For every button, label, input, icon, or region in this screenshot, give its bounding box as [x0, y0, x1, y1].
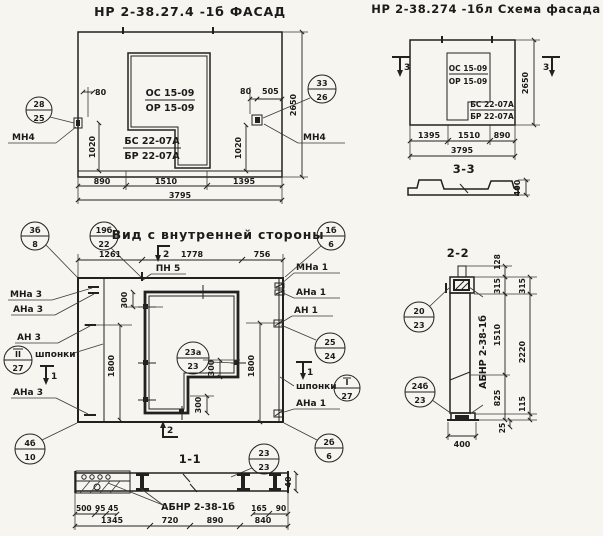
svg-text:22: 22 — [98, 240, 109, 249]
dim-400-profile: 400 — [513, 179, 522, 196]
dim-1020-right: 1020 — [234, 136, 243, 159]
dim-1510-schema: 1510 — [458, 131, 481, 140]
label-abnr-1-1: АБНР 2-38-1б — [161, 502, 235, 513]
svg-text:20: 20 — [413, 307, 425, 316]
dim-1395: 1395 — [233, 177, 256, 186]
dim-40: 40 — [284, 476, 293, 488]
svg-text:3: 3 — [543, 63, 549, 73]
dim-45: 45 — [108, 504, 118, 513]
section-3-3-title: 3-3 — [453, 162, 476, 176]
schema-title: НР 2-38.274 -1бл Схема фасада — [371, 2, 600, 16]
svg-text:II: II — [15, 350, 21, 359]
dim-128: 128 — [493, 254, 502, 270]
svg-text:28: 28 — [33, 100, 45, 109]
dim-300-bottom: 300 — [194, 396, 203, 413]
svg-text:27: 27 — [341, 392, 352, 401]
panel-body-2-2 — [450, 293, 470, 413]
label-ana3-bottom: АНа 3 — [13, 388, 43, 398]
section-mark-2-top: 2 — [155, 246, 170, 262]
svg-text:23а: 23а — [185, 348, 202, 357]
dim-1395-schema: 1395 — [418, 131, 441, 140]
schema-view: НР 2-38.274 -1бл Схема фасада ОС 15-09 О… — [371, 2, 600, 196]
schema-window-mark-bottom: ОР 15-09 — [449, 77, 487, 86]
svg-text:24: 24 — [324, 352, 336, 361]
svg-text:3б: 3б — [29, 225, 41, 235]
dim-500: 500 — [76, 504, 92, 513]
dim-115: 115 — [518, 396, 527, 412]
dim-1510-22: 1510 — [493, 323, 502, 346]
callout-28-25: 28 25 — [26, 97, 74, 123]
blueprint-sheet: НР 2-38.27.4 -1б ФАСАД ОС 15-09 ОР 15-09… — [0, 0, 603, 536]
svg-text:23: 23 — [413, 321, 424, 330]
section-1-1-title: 1-1 — [179, 452, 202, 466]
svg-text:23: 23 — [258, 463, 269, 472]
dim-825: 825 — [493, 389, 502, 406]
dim-2650-schema: 2650 — [521, 71, 530, 94]
callout-23-23: 23 23 — [231, 444, 279, 477]
label-mn4-left: МН4 — [12, 133, 35, 143]
dim-1510: 1510 — [155, 177, 178, 186]
svg-text:8: 8 — [32, 240, 38, 249]
section-mark-2-bottom: 2 — [160, 421, 178, 437]
schema-window-mark-top: ОС 15-09 — [449, 64, 487, 73]
label-ana1-bottom: АНа 1 — [296, 399, 326, 409]
svg-text:23: 23 — [187, 362, 198, 371]
label-shponki-left: шпонки — [35, 350, 76, 360]
dim-840: 840 — [255, 516, 272, 525]
svg-text:25: 25 — [324, 338, 336, 347]
svg-text:25: 25 — [33, 114, 45, 123]
callout-4b-10: 4б 10 — [15, 423, 77, 464]
callout-33-26: 33 26 — [263, 75, 336, 118]
svg-text:23: 23 — [414, 396, 425, 405]
dim-1345: 1345 — [101, 516, 124, 525]
facade-sill-mark-bottom: БР 22-07А — [124, 151, 180, 162]
label-mna3: МНа 3 — [10, 290, 42, 300]
svg-text:I: I — [346, 378, 349, 387]
dim-1800-left: 1800 — [107, 354, 116, 377]
facade-title: НР 2-38.27.4 -1б ФАСАД — [94, 4, 286, 19]
dim-25: 25 — [498, 423, 507, 433]
rib-stem — [458, 266, 466, 277]
dim-1020-left: 1020 — [88, 135, 97, 158]
section-2-2-title: 2-2 — [447, 246, 470, 260]
schema-sill-mark-top: БС 22-07А — [470, 100, 514, 109]
section-mark-1-right: 1 — [296, 362, 313, 380]
panel-end-detail-left — [76, 471, 130, 493]
dim-400: 400 — [454, 440, 471, 449]
dim-505: 505 — [262, 87, 279, 96]
inner-view-title: Вид с внутренней стороны — [112, 227, 325, 242]
dim-756: 756 — [254, 250, 271, 259]
dim-95: 95 — [95, 504, 105, 513]
panel-end-detail-right — [269, 473, 281, 491]
label-an3: АН 3 — [17, 333, 41, 343]
label-shponki-right: шпонки — [296, 382, 337, 392]
svg-text:1: 1 — [307, 368, 313, 378]
dim-300-top: 300 — [120, 291, 129, 308]
section-3-3: 3-3 400 — [408, 162, 530, 196]
svg-text:10: 10 — [24, 453, 36, 462]
facade-sill-mark-top: БС 22-07А — [124, 136, 180, 147]
dim-2220: 2220 — [518, 340, 527, 363]
svg-text:26: 26 — [316, 93, 328, 102]
callout-3b-8: 3б 8 — [21, 222, 78, 278]
inner-panel-outline — [78, 278, 283, 422]
dim-165: 165 — [251, 504, 267, 513]
section-1-1: 1-1 23 23 АБНР 2-38-1б — [75, 444, 296, 530]
dim-1800-right: 1800 — [247, 354, 256, 377]
section-2-2: 2-2 АБНР 2-38-1б 20 23 24б 23 128 315 15 — [404, 246, 537, 449]
svg-text:33: 33 — [316, 79, 327, 88]
rib-section-1 — [136, 473, 149, 491]
section-mark-3-left: 3 — [392, 57, 410, 77]
dim-890: 890 — [94, 177, 111, 186]
label-mna1: МНа 1 — [296, 263, 328, 273]
label-ana1-top: АНа 1 — [296, 288, 326, 298]
svg-text:2: 2 — [163, 250, 169, 260]
facade-window-mark-bottom: ОР 15-09 — [146, 103, 195, 114]
svg-text:27: 27 — [12, 364, 23, 373]
callout-25-24: 25 24 — [281, 325, 345, 363]
svg-text:24б: 24б — [412, 381, 429, 391]
svg-text:4б: 4б — [24, 438, 36, 448]
dim-315-inner: 315 — [493, 278, 502, 294]
dim-80-right: 80 — [240, 87, 252, 96]
svg-text:1б: 1б — [325, 225, 337, 235]
facade-view: НР 2-38.27.4 -1б ФАСАД ОС 15-09 ОР 15-09… — [8, 4, 345, 204]
svg-text:23: 23 — [258, 449, 269, 458]
facade-window-mark-top: ОС 15-09 — [146, 88, 195, 99]
label-ana3-top: АНа 3 — [13, 305, 43, 315]
svg-text:3: 3 — [404, 63, 410, 73]
section-mark-3-right: 3 — [542, 57, 560, 77]
schema-sill-mark-bottom: БР 22-07А — [470, 112, 514, 121]
dim-890-schema: 890 — [494, 131, 511, 140]
dim-80-left: 80 — [95, 88, 107, 97]
section-mark-1-left: 1 — [40, 366, 57, 385]
svg-text:6: 6 — [328, 240, 334, 249]
callout-24b-23: 24б 23 — [405, 377, 452, 414]
svg-text:2: 2 — [167, 426, 173, 436]
svg-text:19б: 19б — [96, 225, 113, 235]
callout-II-27: II 27 — [4, 346, 32, 374]
dim-890-bottom: 890 — [207, 516, 224, 525]
drawing-canvas: НР 2-38.27.4 -1б ФАСАД ОС 15-09 ОР 15-09… — [0, 0, 603, 536]
callout-I-27: I 27 — [334, 375, 360, 401]
label-pn5: ПН 5 — [156, 264, 180, 274]
dim-315-outer: 315 — [518, 278, 527, 294]
label-abnr-2-2: АБНР 2-38-1б — [478, 315, 489, 389]
dim-3795-schema: 3795 — [451, 146, 474, 155]
inner-view: Вид с внутренней стороны 3б 8 19б 22 1б … — [4, 222, 360, 464]
svg-text:6: 6 — [326, 452, 332, 461]
dim-3795-facade: 3795 — [169, 191, 192, 200]
label-mn4-right: МН4 — [303, 133, 326, 143]
callout-20-23: 20 23 — [404, 288, 449, 332]
label-an1: АН 1 — [294, 306, 318, 316]
svg-text:2б: 2б — [323, 437, 335, 447]
dim-720: 720 — [162, 516, 179, 525]
dim-90: 90 — [276, 504, 286, 513]
dim-1778: 1778 — [181, 250, 204, 259]
rib-section-2 — [237, 473, 250, 491]
svg-text:1: 1 — [51, 372, 57, 382]
dim-1261: 1261 — [99, 250, 122, 259]
callout-2b-6: 2б 6 — [284, 423, 343, 462]
